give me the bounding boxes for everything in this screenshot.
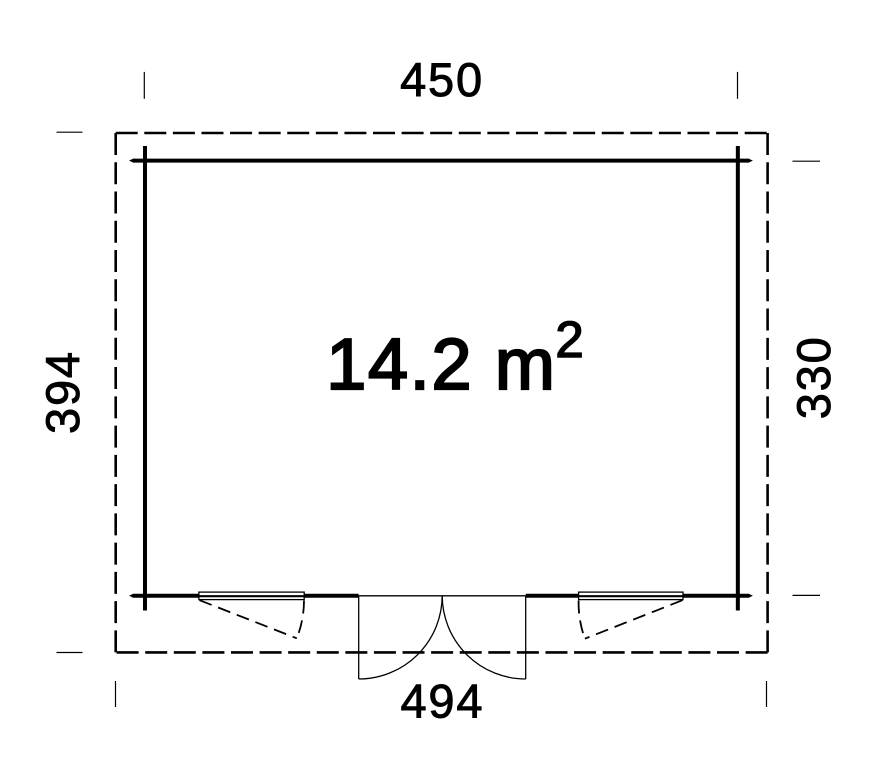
svg-text:2: 2 (555, 311, 583, 368)
svg-text:330: 330 (787, 335, 840, 419)
svg-text:494: 494 (400, 674, 484, 727)
svg-text:394: 394 (36, 350, 89, 434)
svg-text:14.2 m: 14.2 m (326, 325, 556, 405)
svg-text:450: 450 (400, 53, 484, 106)
